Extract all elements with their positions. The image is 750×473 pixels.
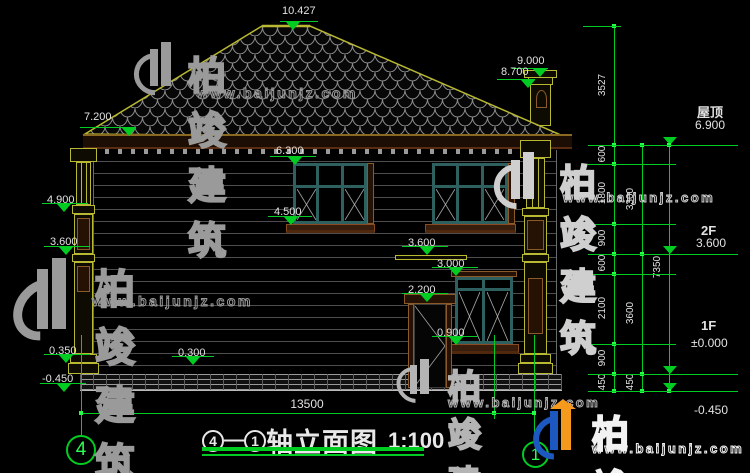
brand-logo-watermark [396, 356, 442, 404]
brand-logo-watermark [494, 148, 550, 212]
watermark-name: 柏竣建筑 [592, 404, 636, 473]
logo-bar [420, 359, 429, 395]
logo-bar [550, 411, 558, 451]
brand-logo-watermark [16, 252, 86, 348]
watermark-name: 柏竣建筑 [448, 360, 488, 473]
logo-bar [52, 258, 66, 329]
watermark-site: www.baijunjz.com [92, 293, 253, 309]
logo-bar [523, 152, 534, 199]
watermark-site: www.baijunjz.com [197, 85, 358, 101]
logo-bar [37, 269, 48, 329]
watermark-layer: 柏竣建筑www.baijunjz.com柏竣建筑www.baijunjz.com… [0, 0, 750, 473]
logo-bar [161, 42, 171, 86]
watermark-name: 柏竣建筑 [188, 45, 233, 265]
watermark-site: www.baijunjz.com [563, 190, 715, 205]
logo-bar [511, 160, 520, 200]
watermark-site: www.baijunjz.com [592, 441, 744, 456]
brand-logo-watermark [134, 38, 186, 98]
brand-logo [534, 399, 586, 463]
logo-bar [150, 49, 158, 86]
logo-roof [550, 399, 576, 409]
watermark-name: 柏竣建筑 [95, 257, 142, 473]
logo-bar [561, 403, 571, 450]
watermark-name: 柏竣建筑 [560, 154, 603, 362]
elevation-drawing-canvas: 10.4279.0008.7007.2006.3004.9004.5003.60… [0, 0, 750, 473]
logo-bar [410, 365, 417, 395]
